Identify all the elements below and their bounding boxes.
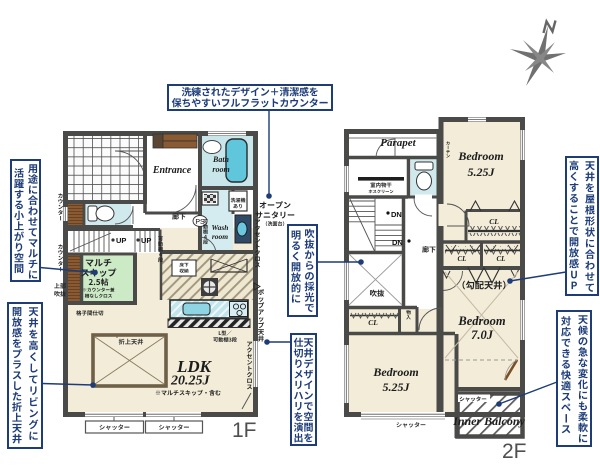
svg-text:Bath: Bath [212, 155, 230, 164]
svg-text:20.25J: 20.25J [170, 374, 211, 389]
svg-text:CL: CL [489, 217, 499, 226]
svg-text:1F: 1F [232, 419, 257, 442]
svg-text:Parapet: Parapet [380, 137, 416, 149]
svg-text:CL: CL [458, 255, 467, 263]
svg-text:room: room [212, 232, 228, 241]
svg-text:DN: DN [392, 238, 403, 247]
svg-text:CL: CL [368, 318, 378, 327]
svg-text:UP: UP [141, 236, 151, 245]
svg-text:Bedroom: Bedroom [457, 149, 503, 163]
svg-text:room: room [212, 165, 229, 174]
svg-text:2F: 2F [502, 440, 527, 463]
svg-text:DN: DN [391, 210, 402, 219]
svg-text:UP: UP [116, 236, 126, 245]
svg-text:Wash: Wash [212, 223, 229, 232]
svg-text:5.25J: 5.25J [468, 165, 496, 179]
svg-text:CL: CL [497, 255, 506, 263]
svg-text:Bedroom: Bedroom [372, 365, 418, 379]
svg-text:Entrance: Entrance [152, 165, 192, 176]
svg-text:Bedroom: Bedroom [457, 314, 506, 328]
svg-text:5.25J: 5.25J [383, 380, 411, 394]
svg-text:PS: PS [195, 219, 205, 226]
svg-text:Inner Balcony: Inner Balcony [452, 414, 525, 428]
svg-text:7.0J: 7.0J [471, 328, 494, 342]
